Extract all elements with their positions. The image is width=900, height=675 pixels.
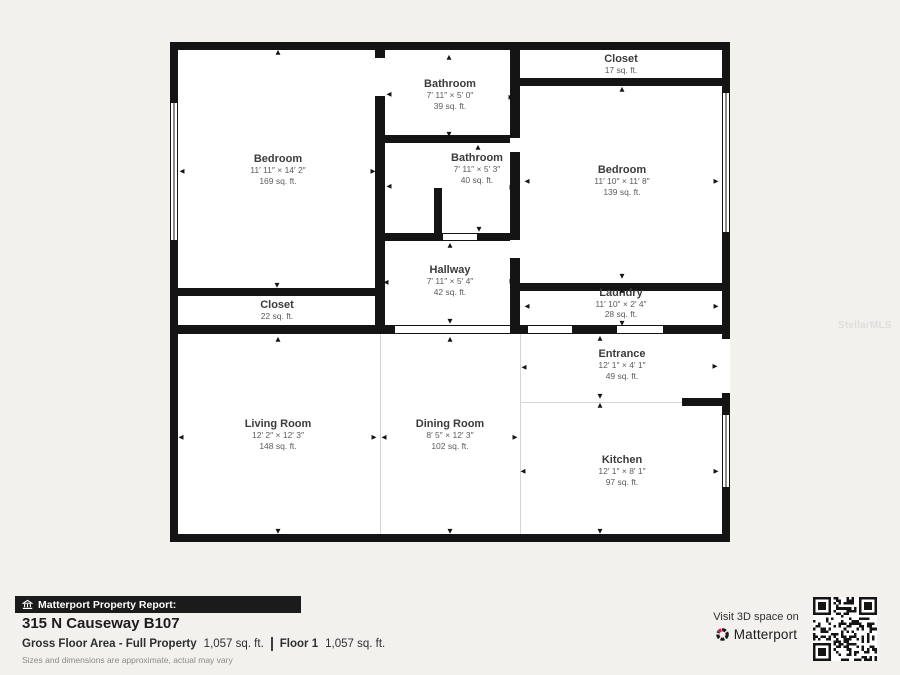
door-arrow-icon: ◀ (525, 303, 530, 310)
door-arrow-icon: ◀ (179, 434, 184, 441)
building-icon (22, 599, 33, 610)
banner-label: Matterport Property Report: (38, 599, 176, 611)
door-opening (375, 58, 385, 96)
room-label-closet-left: Closet 22 sq. ft. (260, 299, 294, 322)
door-arrow-icon: ▶ (371, 168, 376, 175)
door-arrow-icon: ▲ (448, 336, 453, 343)
door-arrow-icon: ▲ (476, 144, 481, 151)
wall (170, 534, 730, 542)
door-arrow-icon: ▼ (448, 318, 453, 325)
door-arrow-icon: ▲ (276, 336, 281, 343)
window (722, 415, 730, 487)
door-arrow-icon: ▼ (275, 282, 280, 289)
room-label-living-room: Living Room 12′ 2″ × 12′ 3″ 148 sq. ft. (245, 418, 312, 452)
visit-3d-cta: Visit 3D space on Matterport (703, 611, 809, 642)
door-arrow-icon: ▲ (448, 242, 453, 249)
wall (178, 288, 385, 296)
door-arrow-icon: ▼ (620, 273, 625, 280)
door-arrow-icon: ▲ (598, 402, 603, 409)
door-opening (510, 138, 520, 152)
door-arrow-icon: ▶ (513, 434, 518, 441)
door-opening (395, 325, 510, 334)
report-banner: Matterport Property Report: (15, 596, 301, 613)
property-address: 315 N Causeway B107 (22, 615, 180, 632)
door-arrow-icon: ◀ (522, 364, 527, 371)
door-arrow-icon: ▲ (620, 287, 625, 294)
door-arrow-icon: ▼ (447, 131, 452, 138)
matterport-logo-icon (715, 627, 730, 642)
door-arrow-icon: ▼ (598, 528, 603, 535)
room-label-bedroom-right: Bedroom 11′ 10″ × 11′ 8″ 139 sq. ft. (594, 164, 649, 198)
door-arrow-icon: ◀ (525, 178, 530, 185)
qr-code (813, 597, 877, 661)
door-arrow-icon: ◀ (521, 468, 526, 475)
floor-plan: Bedroom 11′ 11″ × 14′ 2″ 169 sq. ft. Bat… (170, 42, 730, 542)
room-label-entrance: Entrance 12′ 1″ × 4′ 1″ 49 sq. ft. (598, 348, 645, 382)
floor-1-value: 1,057 sq. ft. (325, 638, 385, 650)
wall (434, 188, 442, 241)
room-label-bathroom-top: Bathroom 7′ 11″ × 5′ 0″ 39 sq. ft. (424, 78, 476, 112)
door-arrow-icon: ▼ (448, 528, 453, 535)
gross-floor-area-value: 1,057 sq. ft. (204, 638, 264, 650)
door-arrow-icon: ▶ (510, 278, 515, 285)
mls-watermark: StellarMLS (838, 320, 892, 331)
door-arrow-icon: ◀ (387, 183, 392, 190)
door-arrow-icon: ▲ (447, 54, 452, 61)
door-arrow-icon: ▶ (714, 178, 719, 185)
door-arrow-icon: ▶ (510, 184, 515, 191)
door-arrow-icon: ◀ (387, 91, 392, 98)
door-arrow-icon: ◀ (382, 434, 387, 441)
floor-area-metrics: Gross Floor Area - Full Property 1,057 s… (22, 637, 385, 651)
brand-wordmark: Matterport (734, 627, 798, 642)
metric-divider (271, 637, 273, 651)
door-arrow-icon: ▼ (620, 320, 625, 327)
page: StellarMLS (0, 0, 900, 675)
door-arrow-icon: ▶ (714, 468, 719, 475)
room-label-closet-top: Closet 17 sq. ft. (604, 53, 638, 76)
door-arrow-icon: ▲ (620, 86, 625, 93)
room-label-hallway: Hallway 7′ 11″ × 5′ 4″ 42 sq. ft. (427, 264, 474, 298)
door-arrow-icon: ▶ (713, 363, 718, 370)
disclaimer-text: Sizes and dimensions are approximate, ac… (22, 655, 233, 665)
room-label-dining-room: Dining Room 8′ 5″ × 12′ 3″ 102 sq. ft. (416, 418, 484, 452)
window (170, 103, 178, 240)
door-arrow-icon: ▶ (509, 94, 514, 101)
wall (682, 398, 730, 406)
door-arrow-icon: ▶ (372, 434, 377, 441)
door-arrow-icon: ▼ (477, 226, 482, 233)
window (722, 93, 730, 232)
door-arrow-icon: ▲ (276, 49, 281, 56)
gross-floor-area-label: Gross Floor Area - Full Property (22, 638, 197, 650)
door-opening (510, 240, 520, 258)
door-arrow-icon: ▲ (598, 335, 603, 342)
door-arrow-icon: ▶ (714, 303, 719, 310)
room-label-bathroom-mid: Bathroom 7′ 11″ × 5′ 3″ 40 sq. ft. (451, 152, 503, 186)
door-opening (528, 325, 572, 334)
wall (385, 135, 520, 143)
door-arrow-icon: ▼ (598, 393, 603, 400)
visit-label: Visit 3D space on (713, 611, 798, 623)
front-door-opening (722, 339, 730, 393)
floor-1-label: Floor 1 (280, 638, 318, 650)
room-label-bedroom-left: Bedroom 11′ 11″ × 14′ 2″ 169 sq. ft. (250, 153, 305, 187)
door-arrow-icon: ▼ (276, 528, 281, 535)
wall (170, 42, 730, 50)
room-label-kitchen: Kitchen 12′ 1″ × 8′ 1″ 97 sq. ft. (598, 454, 645, 488)
door-arrow-icon: ◀ (180, 168, 185, 175)
door-arrow-icon: ◀ (384, 279, 389, 286)
